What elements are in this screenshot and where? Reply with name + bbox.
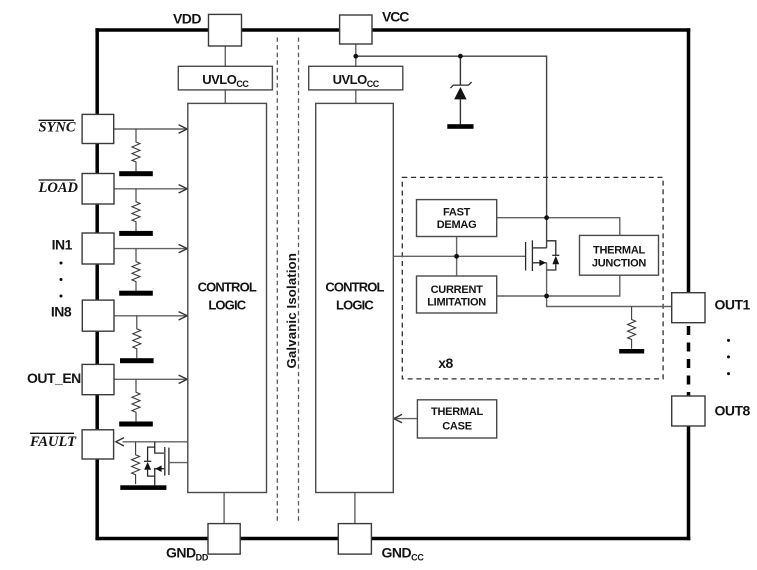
svg-text:SYNC: SYNC (39, 120, 76, 136)
svg-text:CONTROL: CONTROL (325, 280, 384, 295)
svg-text:OUT1: OUT1 (715, 297, 751, 313)
svg-text:IN8: IN8 (51, 304, 72, 320)
svg-text:CURRENT: CURRENT (431, 284, 484, 296)
svg-text:LOGIC: LOGIC (336, 298, 374, 313)
svg-text:LOAD: LOAD (38, 180, 79, 196)
svg-text:Galvanic Isolation: Galvanic Isolation (284, 253, 299, 369)
svg-text:DEMAG: DEMAG (437, 219, 477, 231)
svg-text:FAST: FAST (443, 207, 471, 219)
svg-text:VCC: VCC (382, 8, 409, 24)
svg-text:CASE: CASE (442, 421, 472, 433)
svg-text:x8: x8 (438, 355, 453, 371)
svg-text:FAULT: FAULT (29, 434, 77, 450)
svg-text:LOGIC: LOGIC (208, 298, 246, 313)
svg-text:GNDDD: GNDDD (166, 545, 209, 563)
svg-text:JUNCTION: JUNCTION (592, 258, 647, 270)
svg-text:THERMAL: THERMAL (431, 406, 484, 418)
svg-text:OUT8: OUT8 (715, 403, 751, 419)
svg-text:THERMAL: THERMAL (593, 245, 646, 257)
svg-text:LIMITATION: LIMITATION (427, 297, 486, 309)
svg-text:CONTROL: CONTROL (198, 280, 257, 295)
svg-text:VDD: VDD (173, 11, 201, 27)
svg-text:GNDCC: GNDCC (382, 545, 425, 563)
svg-text:IN1: IN1 (52, 237, 73, 253)
svg-text:OUT_EN: OUT_EN (27, 370, 81, 386)
